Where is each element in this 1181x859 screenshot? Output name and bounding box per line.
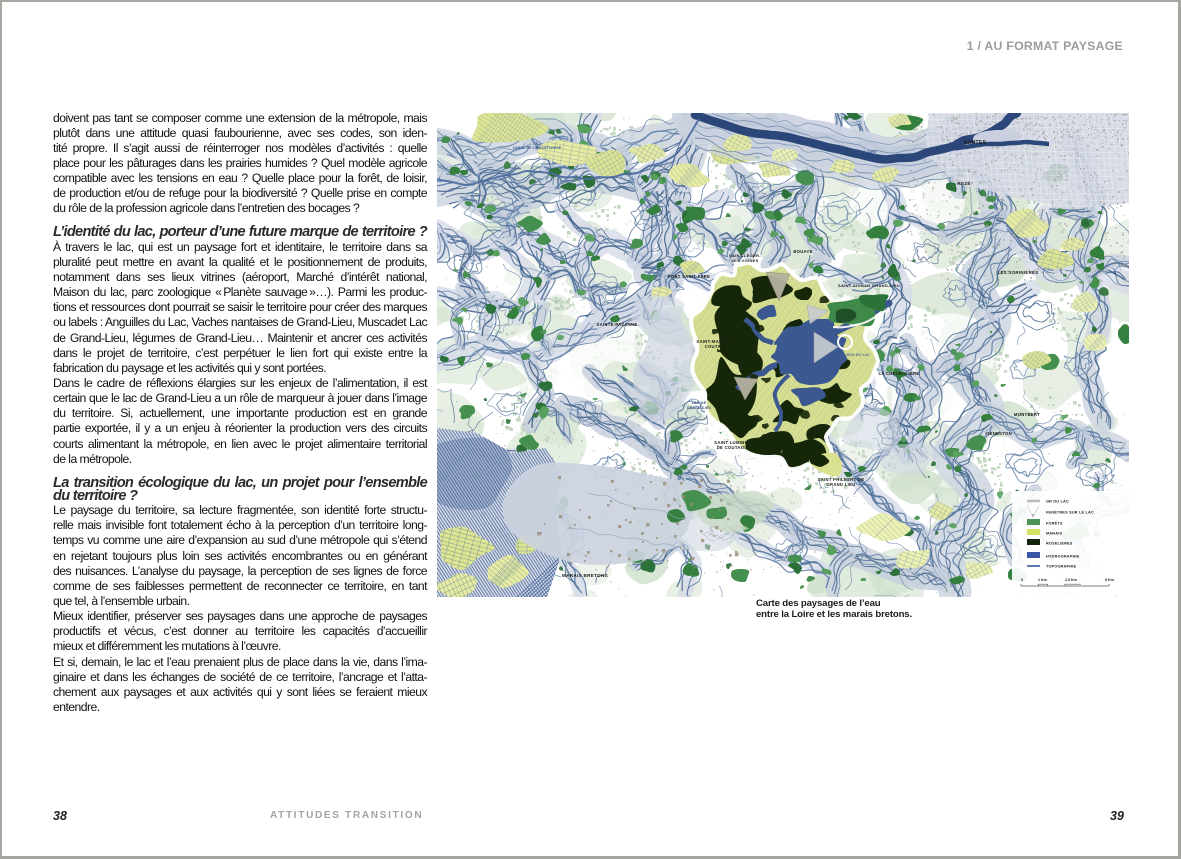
- svg-text:LAC DE: LAC DE: [692, 401, 707, 405]
- svg-text:LA LOIRE: LA LOIRE: [857, 150, 877, 154]
- svg-text:HYDROGRAPHIE: HYDROGRAPHIE: [1046, 555, 1080, 559]
- svg-text:SAINT-AIGNAN GRAND-LIEU: SAINT-AIGNAN GRAND-LIEU: [838, 283, 900, 288]
- svg-text:LES SORINIÈRES: LES SORINIÈRES: [997, 270, 1038, 275]
- svg-text:5 Km: 5 Km: [1105, 578, 1114, 582]
- svg-text:LA CHEVROLIÈRE: LA CHEVROLIÈRE: [878, 371, 919, 376]
- svg-text:TOPOGRAPHIE: TOPOGRAPHIE: [1046, 565, 1076, 569]
- svg-text:SAINTE-PAZANNE: SAINTE-PAZANNE: [597, 322, 638, 327]
- svg-text:DE COUTAIS: DE COUTAIS: [717, 445, 746, 450]
- svg-text:CANAL DE LA MARTINIÈRE: CANAL DE LA MARTINIÈRE: [513, 145, 562, 150]
- svg-text:GR DU LAC: GR DU LAC: [1046, 500, 1069, 504]
- svg-text:BOUAYE: BOUAYE: [793, 249, 812, 254]
- svg-text:PORT SAINT-PÈRE: PORT SAINT-PÈRE: [668, 274, 710, 279]
- svg-text:FENÊTRES SUR LE LAC: FENÊTRES SUR LE LAC: [1046, 510, 1094, 515]
- svg-text:ROSELIÈRES: ROSELIÈRES: [1046, 541, 1073, 546]
- svg-text:GENESTON: GENESTON: [986, 431, 1012, 436]
- svg-text:REZÉ: REZÉ: [957, 179, 970, 186]
- svg-text:1 Km: 1 Km: [1038, 578, 1047, 582]
- svg-text:0: 0: [1021, 578, 1023, 582]
- svg-text:COUTAIS: COUTAIS: [705, 344, 726, 349]
- svg-text:GRAND LIEU: GRAND LIEU: [826, 482, 855, 487]
- svg-text:MARAIS: MARAIS: [1046, 532, 1062, 536]
- svg-text:MAISON DU LAC: MAISON DU LAC: [840, 353, 870, 357]
- svg-text:FORÊTS: FORÊTS: [1046, 521, 1063, 526]
- svg-text:GRAND-LIEU: GRAND-LIEU: [687, 406, 712, 410]
- svg-text:LES-VIGNES: LES-VIGNES: [731, 258, 758, 263]
- svg-text:MONTBERT: MONTBERT: [1014, 412, 1040, 417]
- svg-text:NANTES: NANTES: [964, 140, 987, 146]
- svg-text:MARAIS BRETONS: MARAIS BRETONS: [562, 573, 608, 578]
- svg-text:2,5 Km: 2,5 Km: [1065, 578, 1077, 582]
